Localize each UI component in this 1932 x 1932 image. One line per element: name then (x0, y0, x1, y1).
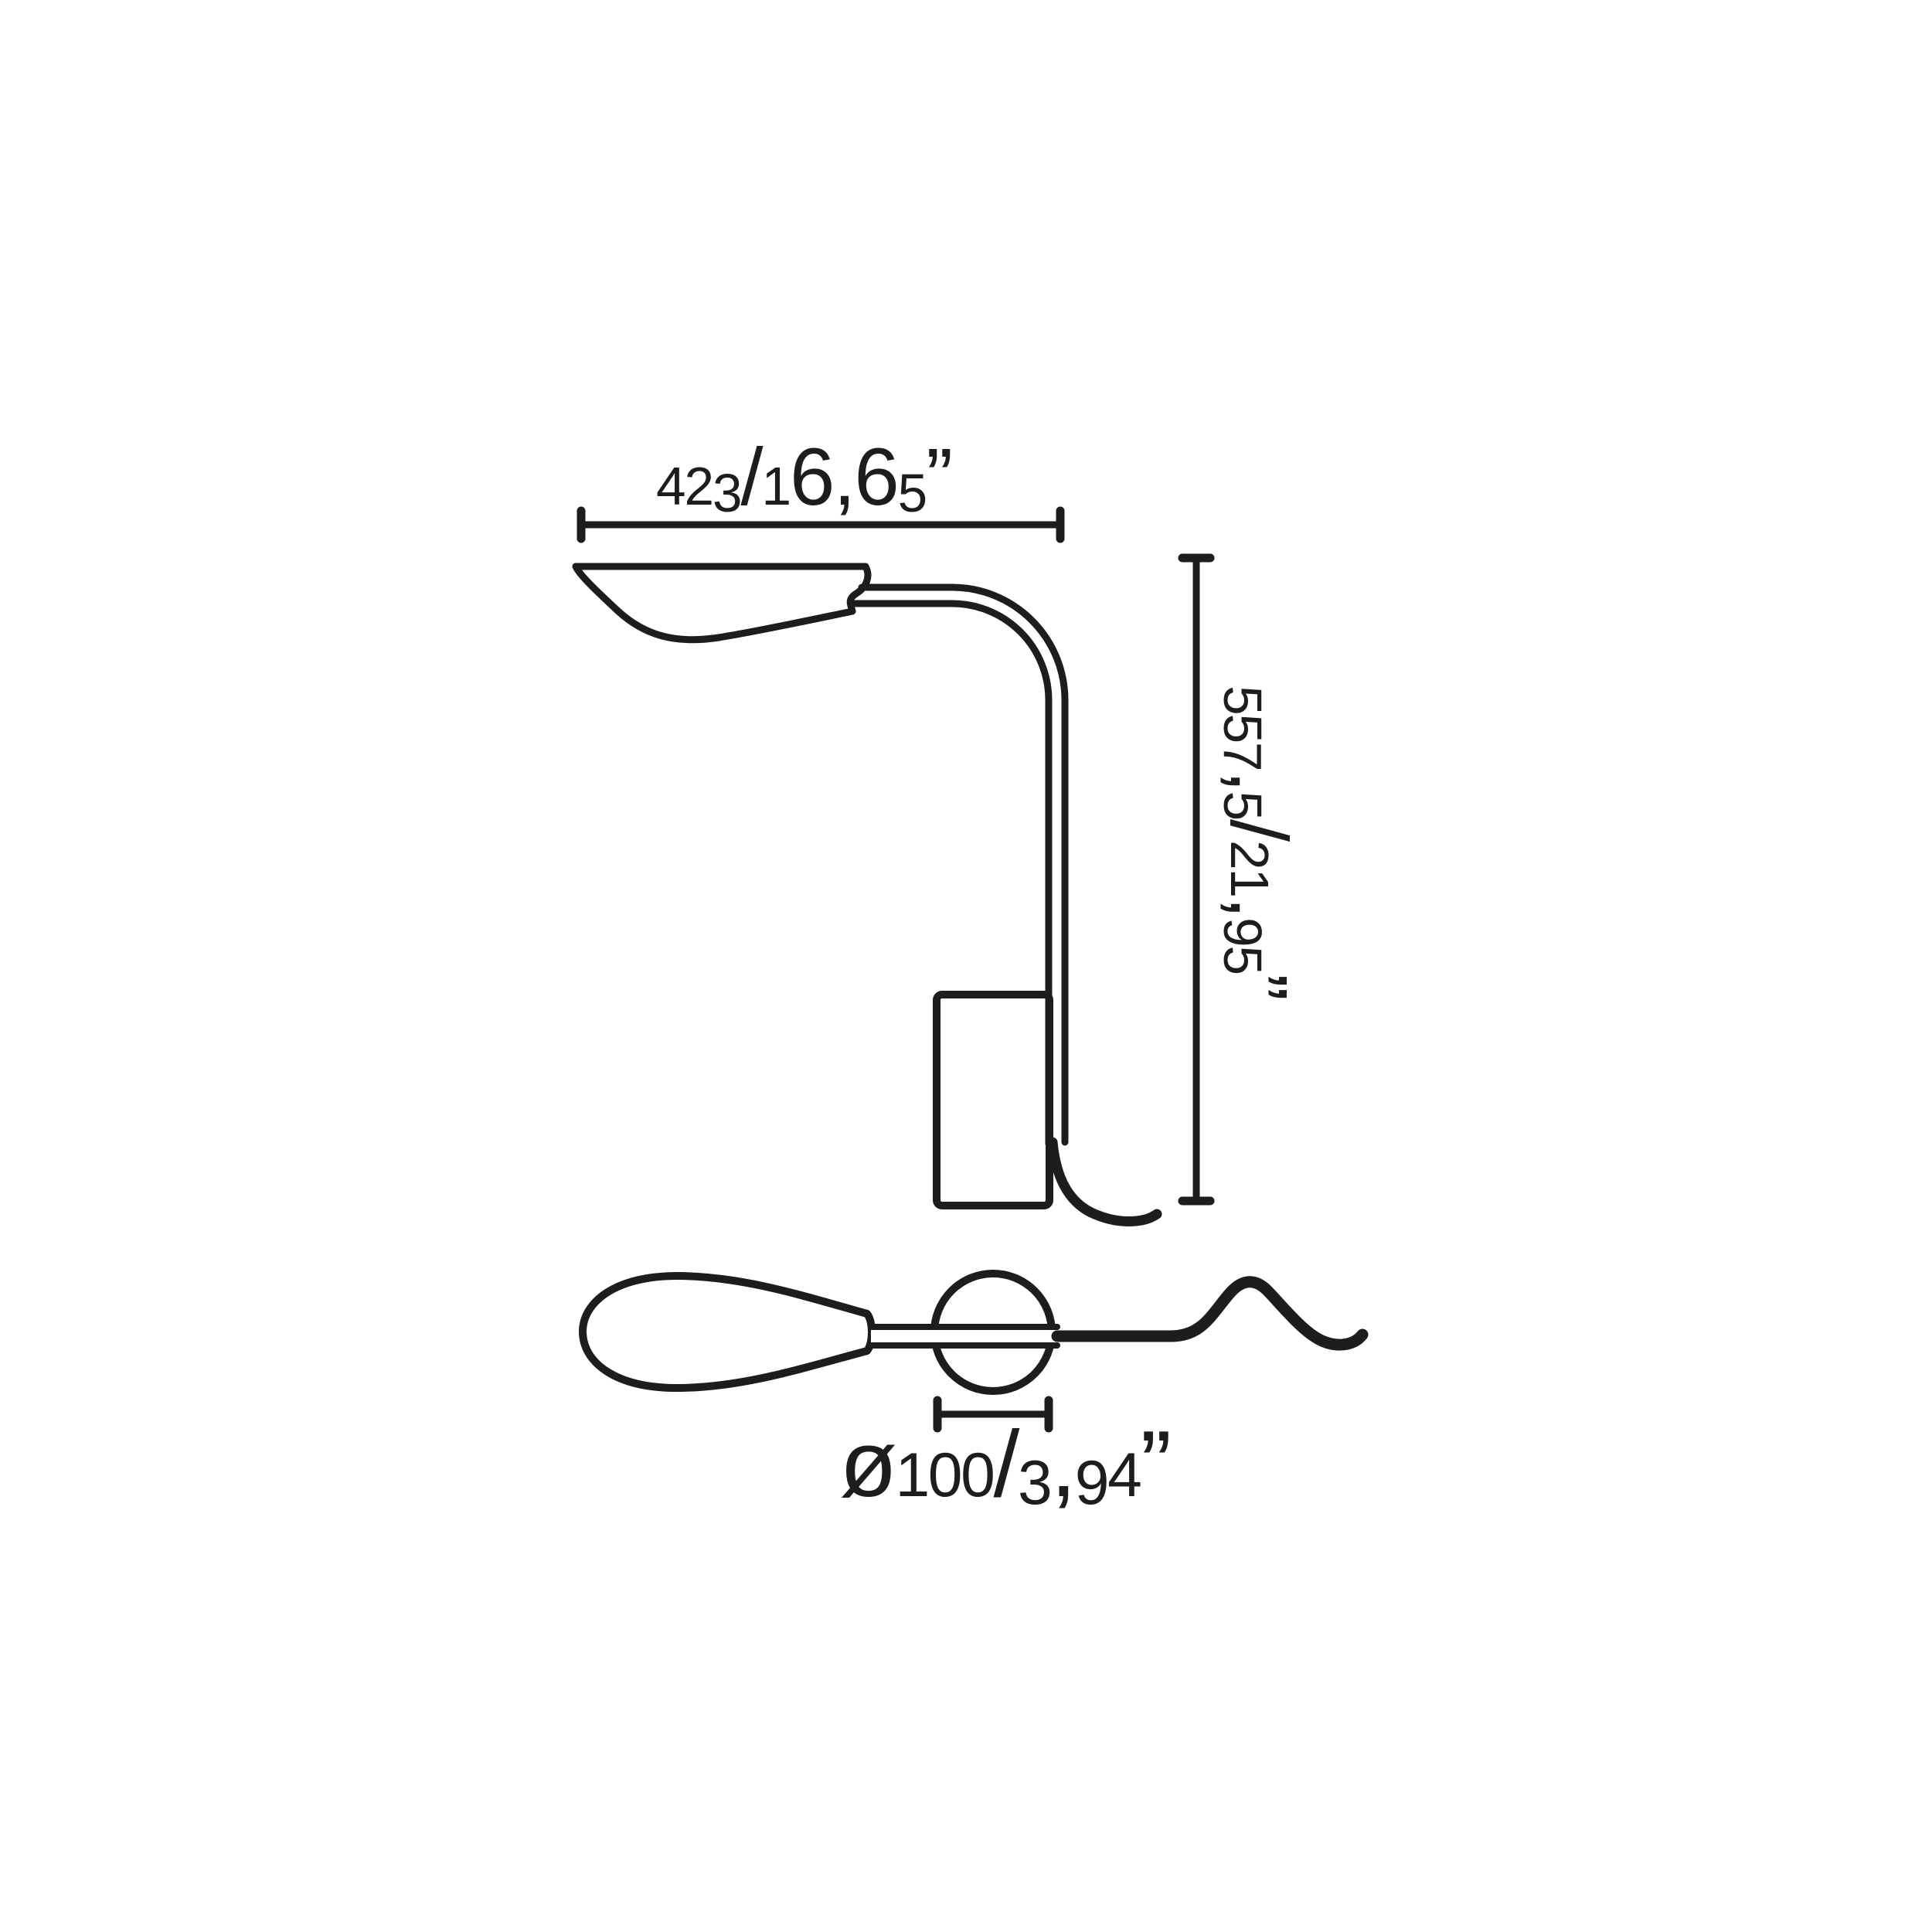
height-dimension-line (1182, 558, 1210, 1201)
lamp-shade-top (583, 1276, 872, 1388)
width-dimension-label: 423/16,65” (495, 437, 1113, 518)
power-cord-top (1057, 1282, 1362, 1345)
height-dimension-label: 557,5/21,95” (1212, 495, 1304, 1190)
diameter-dimension-label: ø100/3,94” (696, 1417, 1314, 1511)
lamp-stem-top (871, 1324, 1057, 1347)
lamp-base-side (937, 995, 1049, 1206)
lamp-shade-side (576, 566, 868, 640)
lamp-line-drawing (0, 0, 1932, 1932)
dimension-diagram-canvas: 423/16,65” 557,5/21,95” ø100/3,94” (0, 0, 1932, 1932)
power-cord-side (1053, 1142, 1157, 1222)
